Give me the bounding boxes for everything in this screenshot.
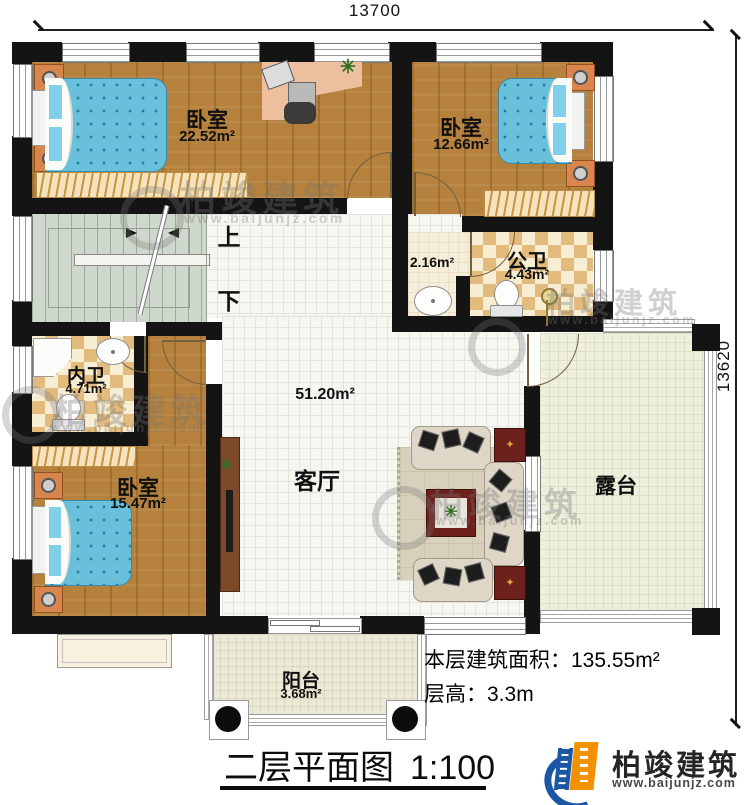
bed-headboard xyxy=(570,92,585,150)
window xyxy=(436,43,542,63)
watermark-url: www.baijunjz.com xyxy=(184,210,345,226)
desk-chair xyxy=(284,102,316,124)
bay-window-inner xyxy=(62,639,167,663)
room-area-private-bathroom: 4.71m² xyxy=(54,381,118,396)
round-column xyxy=(392,706,418,732)
pillow xyxy=(48,84,63,120)
floor-area-value: 135.55m² xyxy=(571,649,660,672)
floor-area-note: 本层建筑面积：135.55m² xyxy=(424,644,660,674)
wall xyxy=(206,322,222,340)
pillow xyxy=(48,544,62,577)
door-leaf xyxy=(390,152,392,198)
wall xyxy=(128,42,186,62)
door-leaf xyxy=(470,232,472,276)
bay-window xyxy=(57,634,172,668)
wall xyxy=(524,530,540,618)
door-leaf xyxy=(414,172,416,216)
wall xyxy=(258,42,314,62)
brand-logo-icon xyxy=(542,738,608,798)
pillow xyxy=(552,122,567,156)
drawing-title-text: 二层平面图 xyxy=(224,740,394,789)
wall xyxy=(392,42,412,214)
room-area-balcony: 3.68m² xyxy=(266,686,336,701)
corner-column xyxy=(692,608,720,635)
pillow xyxy=(48,126,63,162)
window xyxy=(186,43,260,63)
brand-url: www.baijunjz.com xyxy=(612,776,736,790)
window xyxy=(424,617,526,635)
wall xyxy=(12,616,268,634)
stairs-up-label: 上 xyxy=(214,218,244,252)
watermark-logo-circle xyxy=(372,486,436,550)
window xyxy=(62,43,130,63)
door-leaf xyxy=(162,340,206,342)
wardrobe xyxy=(32,446,136,467)
drawing-scale: 1:100 xyxy=(410,749,495,788)
pillow xyxy=(552,84,567,118)
wall xyxy=(360,616,424,634)
cushion xyxy=(441,428,461,448)
room-area-public-bathroom: 4.43m² xyxy=(492,266,562,282)
end-table: ✦ xyxy=(494,428,526,462)
room-area-bedroom-top-left: 22.52m² xyxy=(168,128,246,145)
watermark-url: www.baijunjz.com xyxy=(548,313,696,327)
floor-area-label: 本层建筑面积： xyxy=(424,649,571,672)
wall xyxy=(12,322,110,336)
watermark-url: www.baijunjz.com xyxy=(436,514,584,528)
room-label-terrace: 露台 xyxy=(581,470,651,500)
watermark-logo-circle xyxy=(2,386,60,444)
room-area-wash-area: 2.16m² xyxy=(403,254,461,270)
dimension-top-line xyxy=(38,29,714,31)
nightstand xyxy=(34,472,63,499)
door-leaf xyxy=(144,336,146,372)
wall xyxy=(524,616,540,634)
window xyxy=(594,76,614,162)
nightstand xyxy=(566,160,595,187)
wall xyxy=(206,446,220,618)
stairs-edge xyxy=(206,214,207,322)
stairs-down-label: 下 xyxy=(214,282,244,316)
end-table: ✦ xyxy=(494,566,526,600)
logo-building-windows xyxy=(580,748,588,782)
floor-height-note: 层高：3.3m xyxy=(424,678,534,708)
plant-icon: ✳ xyxy=(221,458,232,471)
floor-height-value: 3.3m xyxy=(487,683,534,706)
bed-headboard xyxy=(32,90,46,146)
wall xyxy=(12,42,32,64)
door-leaf xyxy=(527,334,529,386)
cushion xyxy=(443,567,463,587)
room-label-living-room: 客厅 xyxy=(282,462,352,496)
room-area-living-room: 51.20m² xyxy=(287,386,363,404)
watermark-logo-circle xyxy=(468,318,526,376)
window xyxy=(13,216,33,302)
dimension-right-value: 13620 xyxy=(714,326,734,406)
dimension-top-value: 13700 xyxy=(339,1,411,21)
pillow xyxy=(48,506,62,539)
sliding-door-panel xyxy=(310,626,360,632)
round-column xyxy=(215,706,241,732)
sink xyxy=(414,286,452,316)
bed-headboard xyxy=(32,506,46,574)
window xyxy=(13,466,33,560)
dimension-right-line xyxy=(735,36,737,726)
window xyxy=(13,64,33,138)
wall xyxy=(392,214,408,332)
nightstand xyxy=(34,586,63,613)
floorplan-canvas: ✳ ✳ ✦ ✦ ✳ 柏竣建筑 xyxy=(0,0,750,805)
title-underline xyxy=(220,786,486,790)
stairs-handrail xyxy=(74,254,210,266)
wall xyxy=(593,42,613,76)
floor-height-label: 层高： xyxy=(424,683,487,706)
terrace-railing xyxy=(540,610,694,623)
toilet-tank xyxy=(490,305,523,317)
room-area-bedroom-top-right: 12.66m² xyxy=(422,136,500,153)
plant-icon: ✳ xyxy=(340,58,356,77)
watermark-logo-circle xyxy=(120,186,184,250)
watermark-url: www.baijunjz.com xyxy=(50,420,202,435)
tv xyxy=(226,490,233,552)
wardrobe xyxy=(484,190,595,217)
drawing-title: 二层平面图 1:100 xyxy=(224,740,495,789)
room-area-bedroom-bottom-left: 15.47m² xyxy=(99,495,177,512)
wall xyxy=(462,216,613,232)
wall xyxy=(524,386,540,456)
wall xyxy=(593,160,613,250)
